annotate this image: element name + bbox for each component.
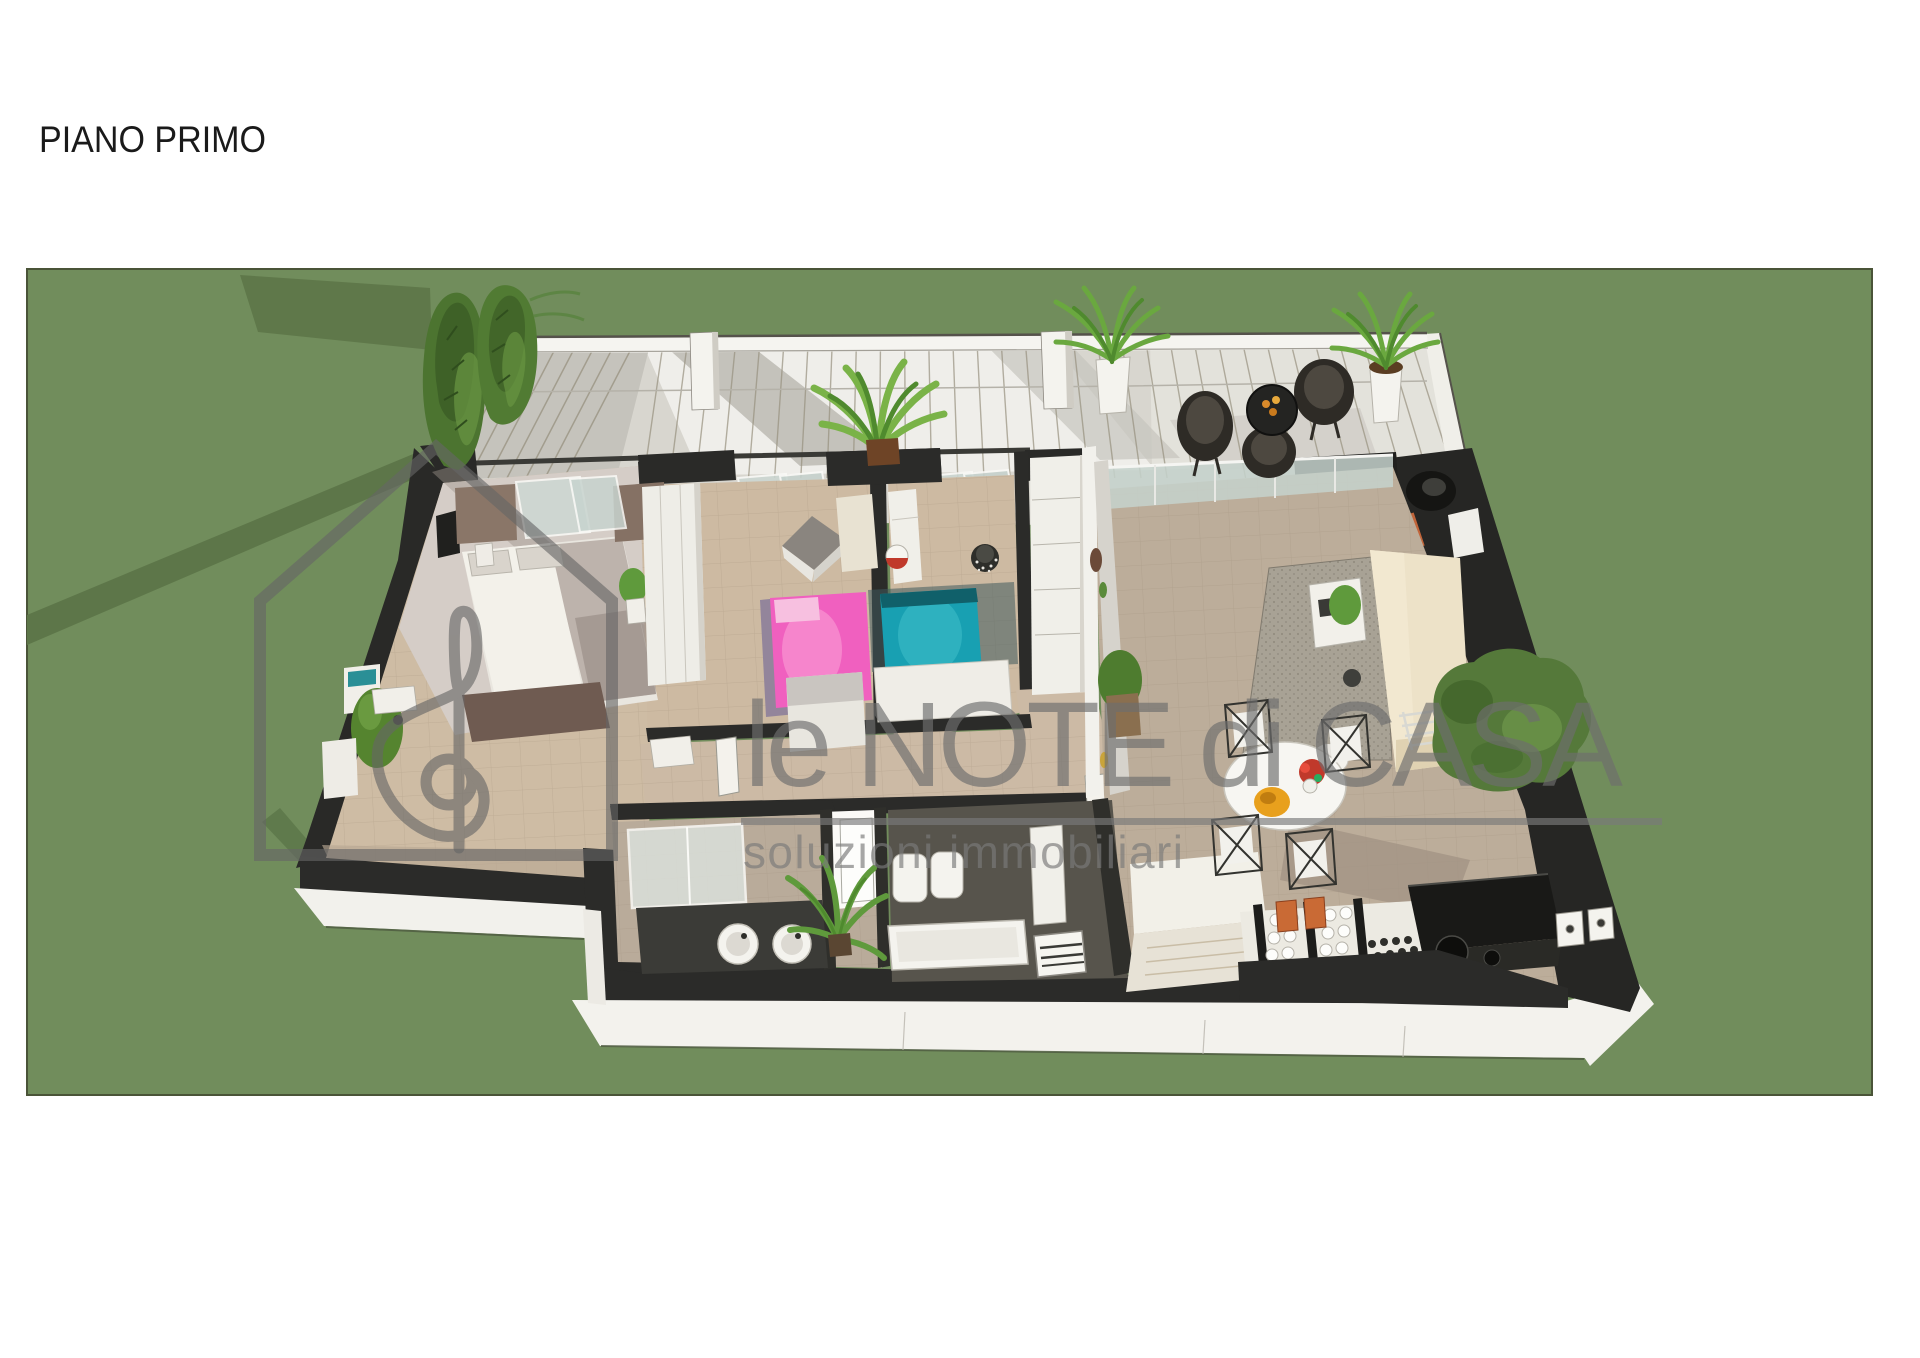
svg-text:soluzioni immobiliari: soluzioni immobiliari <box>743 826 1183 878</box>
svg-text:PIANO PRIMO: PIANO PRIMO <box>39 119 266 160</box>
svg-text:le NOTE di CASA: le NOTE di CASA <box>744 676 1623 812</box>
